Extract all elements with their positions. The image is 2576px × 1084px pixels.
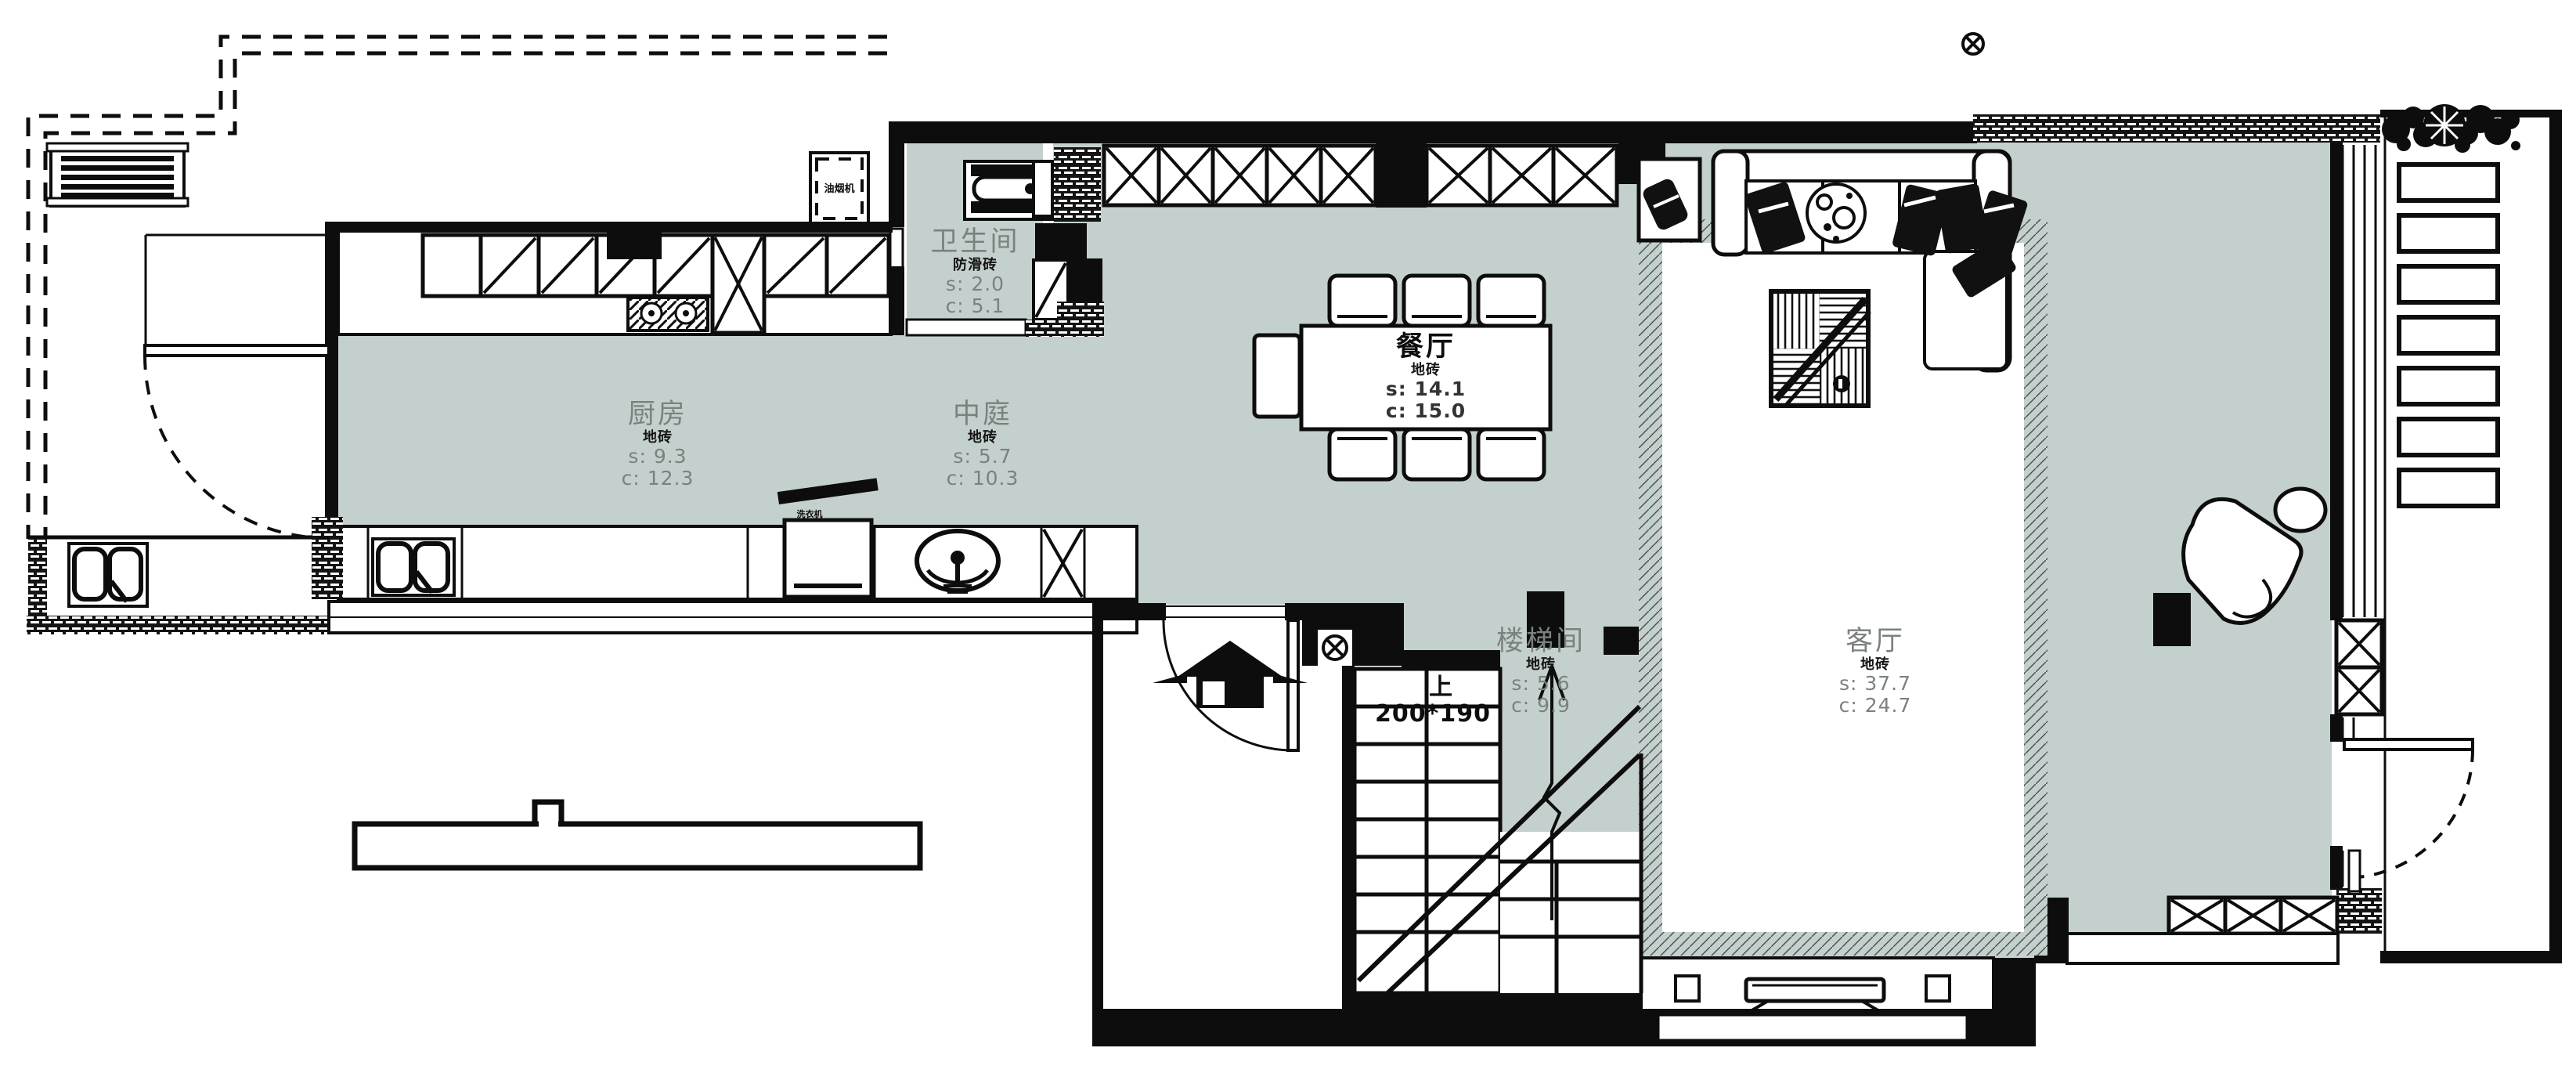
- balcony-steps: [2399, 164, 2498, 506]
- room-finish: 地砖: [1797, 657, 1954, 673]
- room-name: 餐厅: [1303, 332, 1549, 363]
- right-window: [2343, 117, 2385, 951]
- bottom-window-sill: [1658, 1015, 1967, 1040]
- balcony-door-swing: [2344, 750, 2473, 878]
- room-area-c: c: 5.1: [907, 295, 1044, 317]
- terrace-door-leaf: [145, 345, 329, 356]
- storage-row: [1104, 146, 1617, 205]
- balcony-door: [2344, 739, 2473, 891]
- room-label-bathroom: 卫生间 防滑砖 s: 2.0 c: 5.1: [907, 227, 1044, 317]
- room-finish: 地砖: [1303, 363, 1549, 378]
- side-table-lamp: [1639, 159, 1700, 240]
- room-area-s: s: 5.7: [904, 446, 1061, 468]
- stairs-dimension: 200*190: [1362, 700, 1503, 728]
- sofa-dotted-cushion: [1807, 184, 1865, 242]
- room-label-atrium: 中庭 地砖 s: 5.7 c: 10.3: [904, 399, 1061, 490]
- stove: [628, 298, 708, 331]
- room-name: 楼梯间: [1463, 627, 1619, 657]
- room-label-dining: 餐厅 地砖 s: 14.1 c: 15.0: [1303, 332, 1549, 422]
- plan-drawing: [0, 0, 2576, 1084]
- dining-chair: [1329, 276, 1395, 326]
- room-area-s: s: 9.3: [579, 446, 736, 468]
- coffee-table: [1771, 291, 1870, 406]
- side-porch-rail: [146, 235, 329, 345]
- room-finish: 地砖: [904, 430, 1061, 446]
- kitchen-terrace-door: [145, 345, 329, 538]
- dining-chair: [1478, 276, 1544, 326]
- stairs-up-label: 上: [1409, 667, 1472, 702]
- room-area-s: s: 5.6: [1463, 673, 1619, 695]
- dining-bench: [1254, 335, 1300, 417]
- room-name: 厨房: [579, 399, 736, 430]
- room-area-s: s: 2.0: [907, 273, 1044, 295]
- outdoor-terrace: [27, 537, 332, 634]
- room-name: 中庭: [904, 399, 1061, 430]
- room-area-s: s: 37.7: [1797, 673, 1954, 695]
- room-label-kitchen: 厨房 地砖 s: 9.3 c: 12.3: [579, 399, 736, 490]
- drain-symbol: [1318, 630, 1352, 666]
- room-label-living: 客厅 地砖 s: 37.7 c: 24.7: [1797, 627, 1954, 717]
- dining-chair: [1404, 276, 1470, 326]
- valve-symbol: [1963, 34, 1983, 54]
- balcony-door-leaf: [2344, 739, 2473, 750]
- speaker: [1676, 976, 1699, 1001]
- right-wall-cabinets: [2336, 620, 2382, 714]
- terrace-door-swing: [145, 356, 329, 538]
- outdoor-bench: [355, 802, 920, 868]
- dining-chair: [1478, 429, 1544, 479]
- room-finish: 防滑砖: [907, 258, 1044, 273]
- dining-chair: [1329, 429, 1395, 479]
- room-name: 客厅: [1797, 627, 1954, 657]
- room-area-c: c: 10.3: [904, 468, 1061, 490]
- room-area-c: c: 12.3: [579, 468, 736, 490]
- room-area-c: c: 24.7: [1797, 695, 1954, 717]
- room-area-c: c: 15.0: [1303, 400, 1549, 422]
- room-finish: 地砖: [579, 430, 736, 446]
- flower-icon: [2426, 107, 2463, 144]
- room-finish: 地砖: [1463, 657, 1619, 673]
- tv-console: [1641, 958, 1993, 1012]
- floor-plan: 卫生间 防滑砖 s: 2.0 c: 5.1 厨房 地砖 s: 9.3 c: 12…: [0, 0, 2576, 1084]
- ac-louver: [47, 143, 188, 206]
- room-name: 卫生间: [907, 227, 1044, 258]
- round-basin: [917, 531, 998, 592]
- kitchen-bottom-window: [329, 602, 1137, 633]
- speaker: [1926, 976, 1950, 1001]
- kitchen-sink: [373, 539, 454, 595]
- terrace-sink: [69, 544, 147, 606]
- room-area-s: s: 14.1: [1303, 378, 1549, 400]
- ottoman: [2275, 489, 2325, 531]
- range-hood-label: 油烟机: [812, 180, 867, 195]
- washer-label: 洗衣机: [786, 508, 833, 520]
- dining-chair: [1404, 429, 1470, 479]
- entry-door-leaf: [1288, 620, 1298, 750]
